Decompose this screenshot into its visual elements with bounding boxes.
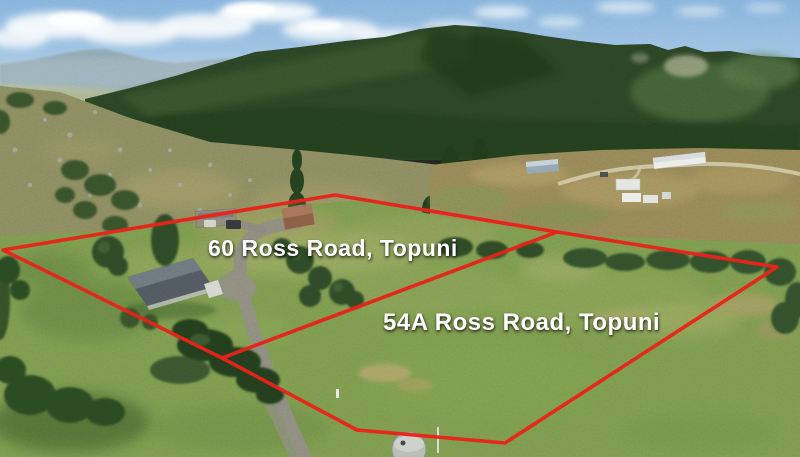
aerial-property-photo: 60 Ross Road, Topuni 54A Ross Road, Topu… [0,0,800,457]
photo-grain [0,0,800,457]
property-label-60-ross-road: 60 Ross Road, Topuni [208,235,458,262]
property-label-54a-ross-road: 54A Ross Road, Topuni [383,309,660,337]
photo-scene [0,0,800,457]
